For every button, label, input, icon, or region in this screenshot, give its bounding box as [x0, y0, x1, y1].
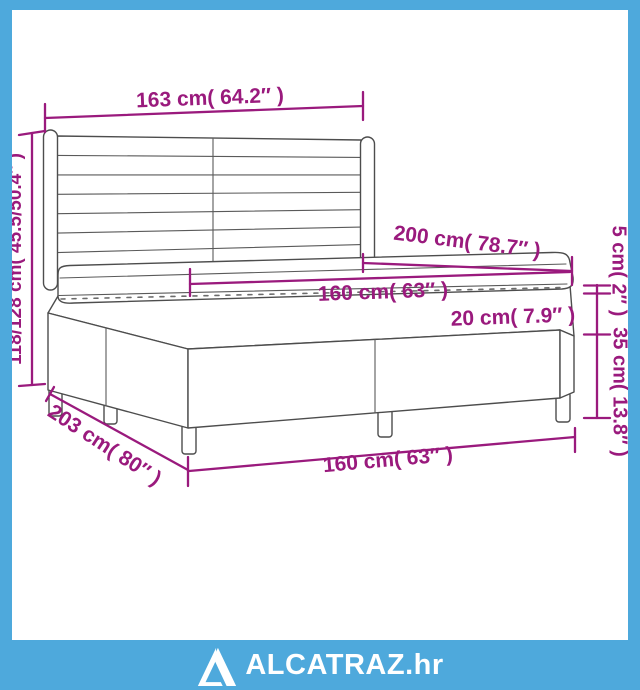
footer-brand-bar: ALCATRAZ.hr — [0, 640, 640, 690]
product-diagram-image: 163 cm( 64.2″ ) 118/128 cm( 45.5/50.4″ )… — [0, 0, 640, 690]
frame-border — [0, 0, 640, 690]
brand-name: ALCATRAZ.hr — [245, 651, 443, 680]
alcatraz-triangle-logo-icon — [196, 644, 238, 686]
